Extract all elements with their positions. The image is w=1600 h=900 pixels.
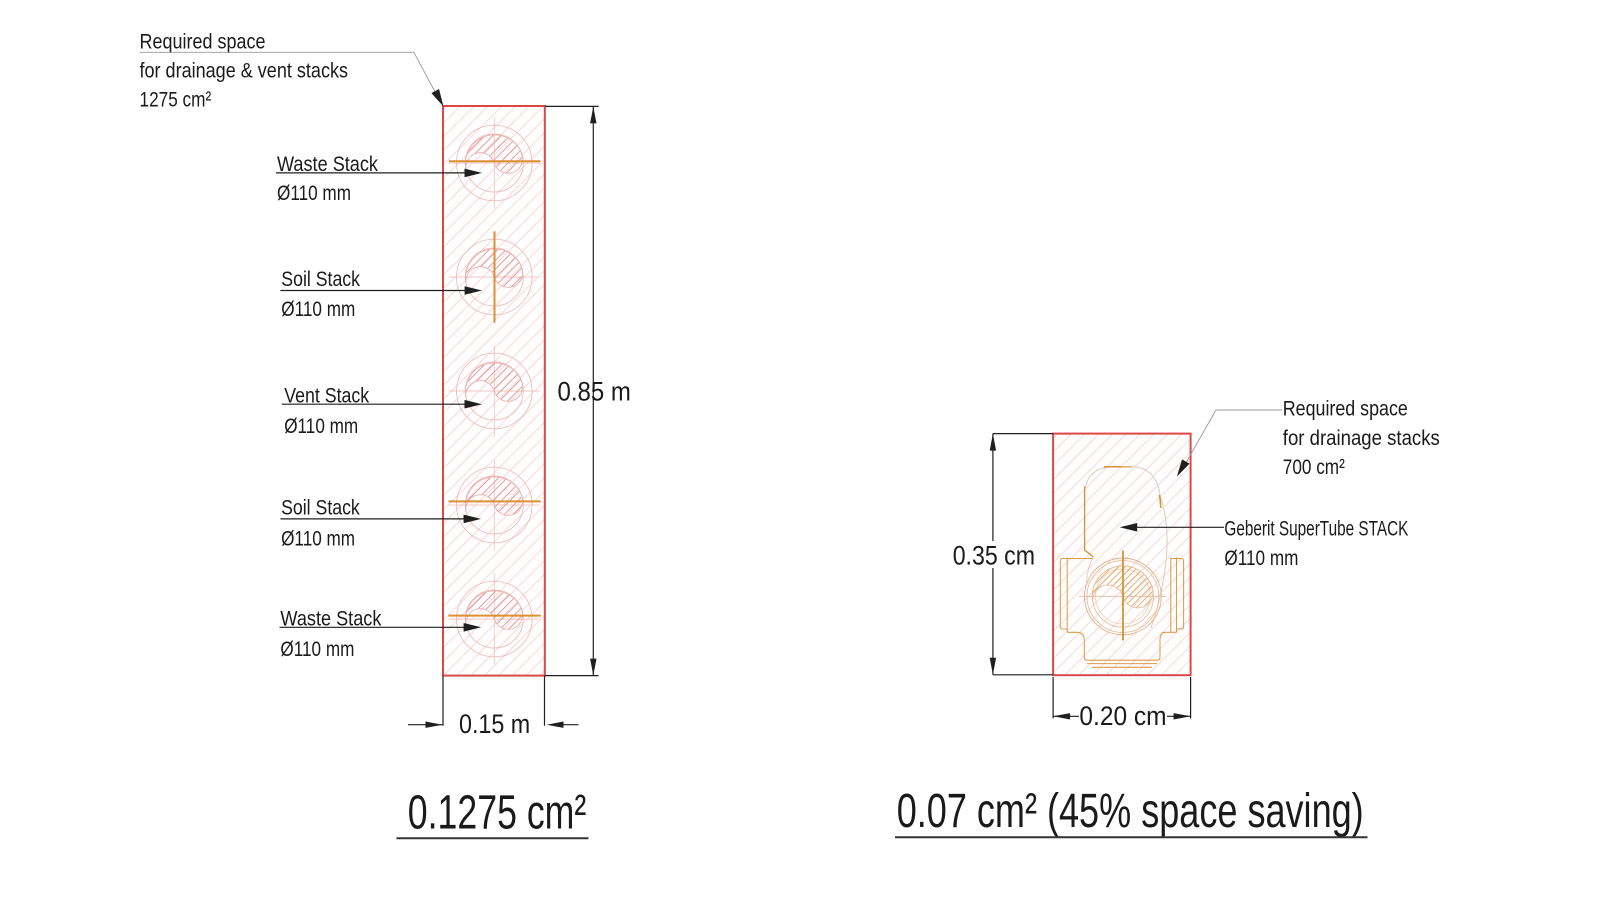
svg-text:700 cm²: 700 cm² — [1283, 455, 1345, 479]
svg-text:Required space: Required space — [140, 29, 266, 53]
svg-text:1275 cm²: 1275 cm² — [140, 88, 212, 112]
svg-text:Ø110 mm: Ø110 mm — [281, 297, 355, 321]
svg-text:Ø110 mm: Ø110 mm — [284, 414, 358, 438]
svg-text:Ø110 mm: Ø110 mm — [277, 181, 351, 205]
svg-text:0.1275 cm²: 0.1275 cm² — [408, 787, 587, 840]
svg-text:Soil Stack: Soil Stack — [281, 496, 360, 520]
svg-text:Ø110 mm: Ø110 mm — [1224, 546, 1298, 570]
svg-text:Soil Stack: Soil Stack — [281, 267, 360, 291]
svg-text:Ø110 mm: Ø110 mm — [280, 637, 354, 661]
svg-text:for drainage & vent stacks: for drainage & vent stacks — [140, 59, 349, 83]
svg-text:0.07 cm² (45% space saving): 0.07 cm² (45% space saving) — [897, 785, 1364, 838]
svg-text:0.85 m: 0.85 m — [558, 377, 631, 407]
svg-text:0.20 cm: 0.20 cm — [1079, 701, 1166, 731]
svg-text:Required space: Required space — [1283, 397, 1408, 421]
svg-text:0.15 m: 0.15 m — [459, 709, 530, 739]
svg-text:0.35 cm: 0.35 cm — [953, 540, 1035, 570]
svg-text:Ø110 mm: Ø110 mm — [281, 527, 355, 551]
svg-text:Geberit SuperTube STACK: Geberit SuperTube STACK — [1224, 517, 1408, 541]
svg-text:for drainage stacks: for drainage stacks — [1283, 426, 1440, 450]
